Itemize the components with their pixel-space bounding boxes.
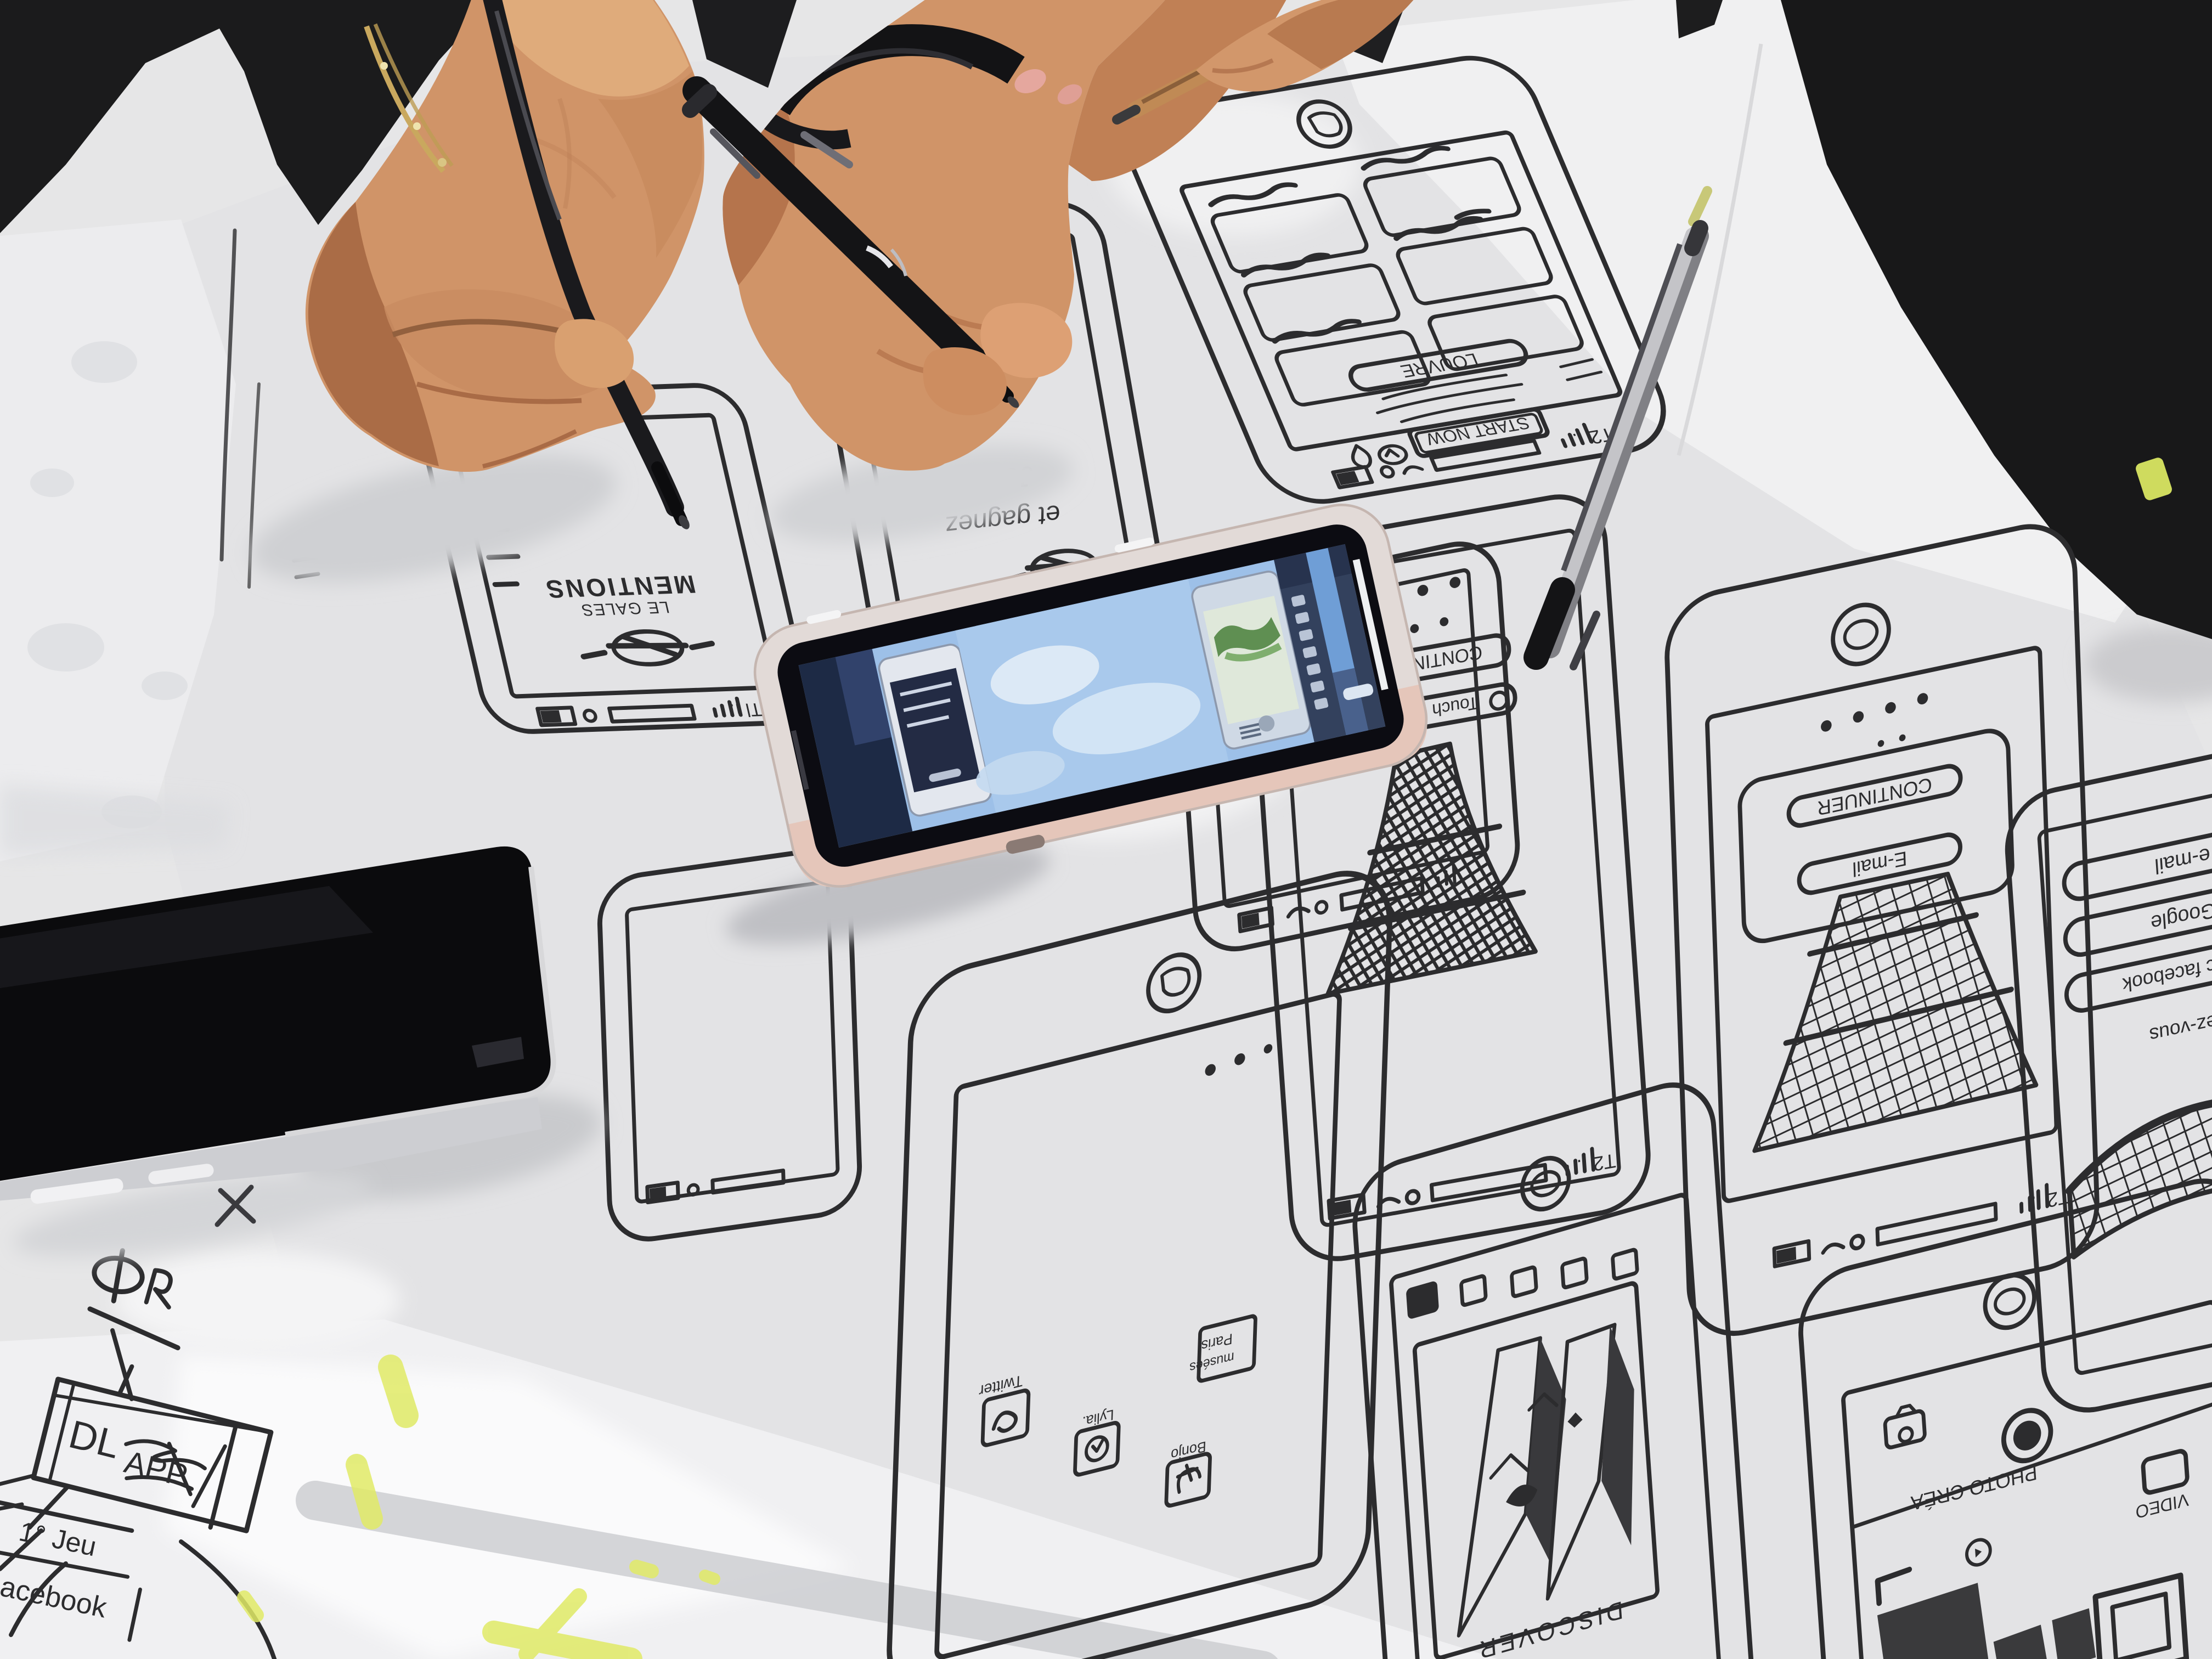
svg-text:Tl ı.: Tl ı. — [728, 699, 764, 720]
svg-text:MENTIONS: MENTIONS — [541, 570, 698, 603]
svg-text:LE GALES: LE GALES — [579, 598, 671, 619]
